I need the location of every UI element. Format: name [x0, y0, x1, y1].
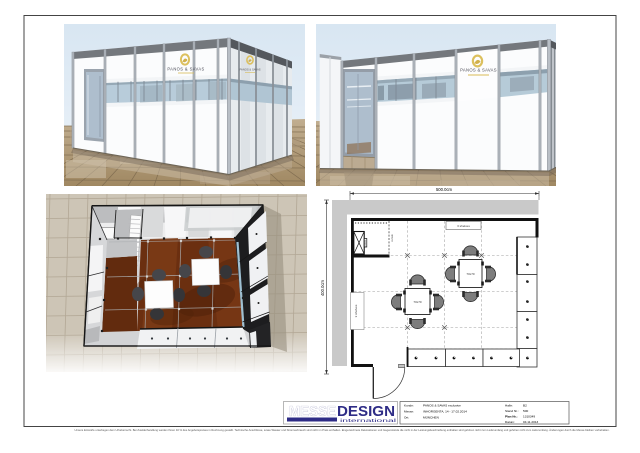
svg-text:MESSE: MESSE — [289, 403, 336, 420]
svg-text:PANOS & SAVAS: PANOS & SAVAS — [460, 67, 497, 72]
svg-text:DESIGN: DESIGN — [337, 403, 395, 420]
svg-text:70x70: 70x70 — [413, 300, 422, 304]
svg-text:Messe:: Messe: — [404, 410, 414, 414]
svg-text:500.0cm: 500.0cm — [436, 187, 453, 192]
svg-text:Plan Nr.:: Plan Nr.: — [505, 414, 518, 418]
svg-text:curtain: curtain — [390, 234, 394, 242]
svg-text:Ort:: Ort: — [404, 416, 409, 420]
svg-text:Stand Nr.:: Stand Nr.: — [505, 409, 519, 413]
svg-text:Datum:: Datum: — [505, 420, 515, 424]
svg-text:MÜNCHEN: MÜNCHEN — [423, 416, 439, 420]
svg-text:FRIDGE: FRIDGE — [365, 239, 367, 247]
svg-text:70x70: 70x70 — [466, 272, 475, 276]
svg-text:INHORGENTA, 14 - 17.02.2014: INHORGENTA, 14 - 17.02.2014 — [423, 410, 467, 414]
svg-text:PANOS & SAVAS: PANOS & SAVAS — [167, 67, 204, 72]
svg-text:B2: B2 — [523, 403, 527, 407]
svg-text:500: 500 — [523, 409, 528, 413]
svg-text:international: international — [340, 418, 396, 424]
svg-text:PANOS & SAVAS exclusive: PANOS & SAVAS exclusive — [423, 404, 461, 408]
svg-text:3 shelves: 3 shelves — [457, 224, 470, 228]
svg-text:04.11.2013: 04.11.2013 — [523, 420, 539, 424]
svg-text:3 shelves: 3 shelves — [354, 304, 358, 317]
svg-text:Kunde:: Kunde: — [404, 404, 414, 408]
svg-text:1310349: 1310349 — [523, 414, 535, 418]
svg-text:Unsere Entwürfe unterliegen de: Unsere Entwürfe unterliegen dem Urheberr… — [75, 428, 610, 432]
svg-text:Halle:: Halle: — [505, 403, 513, 407]
svg-text:400.0cm: 400.0cm — [320, 279, 325, 296]
svg-text:PANOS & SAVAS: PANOS & SAVAS — [239, 68, 260, 72]
